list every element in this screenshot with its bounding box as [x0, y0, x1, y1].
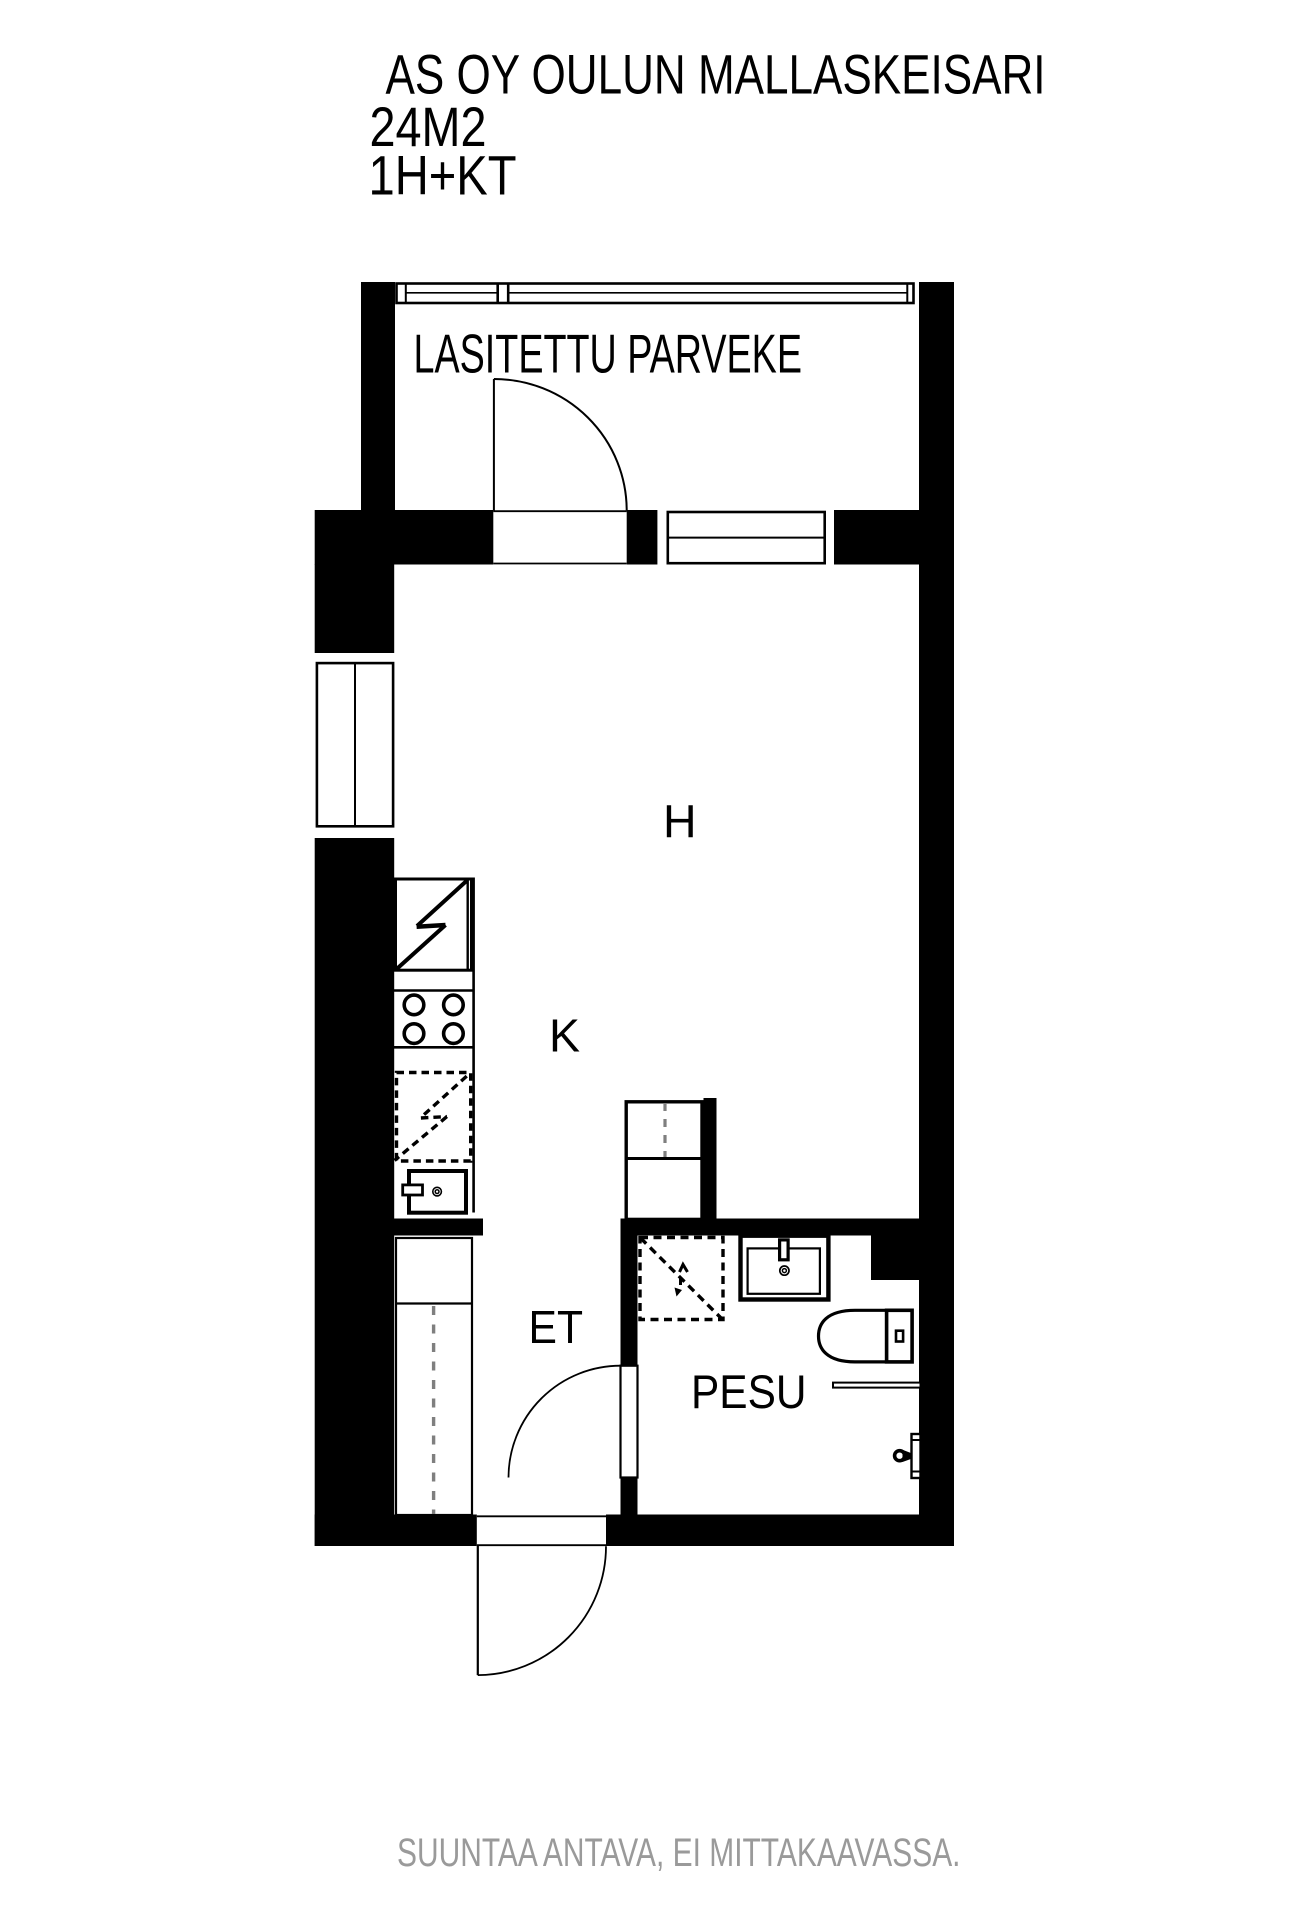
svg-text:ET: ET: [529, 1301, 584, 1353]
svg-text:1H+KT: 1H+KT: [369, 144, 517, 207]
svg-text:K: K: [549, 1009, 580, 1061]
svg-text:SUUNTAA ANTAVA, EI MITTAKAAVAS: SUUNTAA ANTAVA, EI MITTAKAAVASSA.: [397, 1831, 961, 1875]
svg-text:PESU: PESU: [691, 1365, 807, 1418]
svg-text:LASITETTU PARVEKE: LASITETTU PARVEKE: [414, 324, 803, 385]
svg-text:H: H: [663, 795, 697, 847]
